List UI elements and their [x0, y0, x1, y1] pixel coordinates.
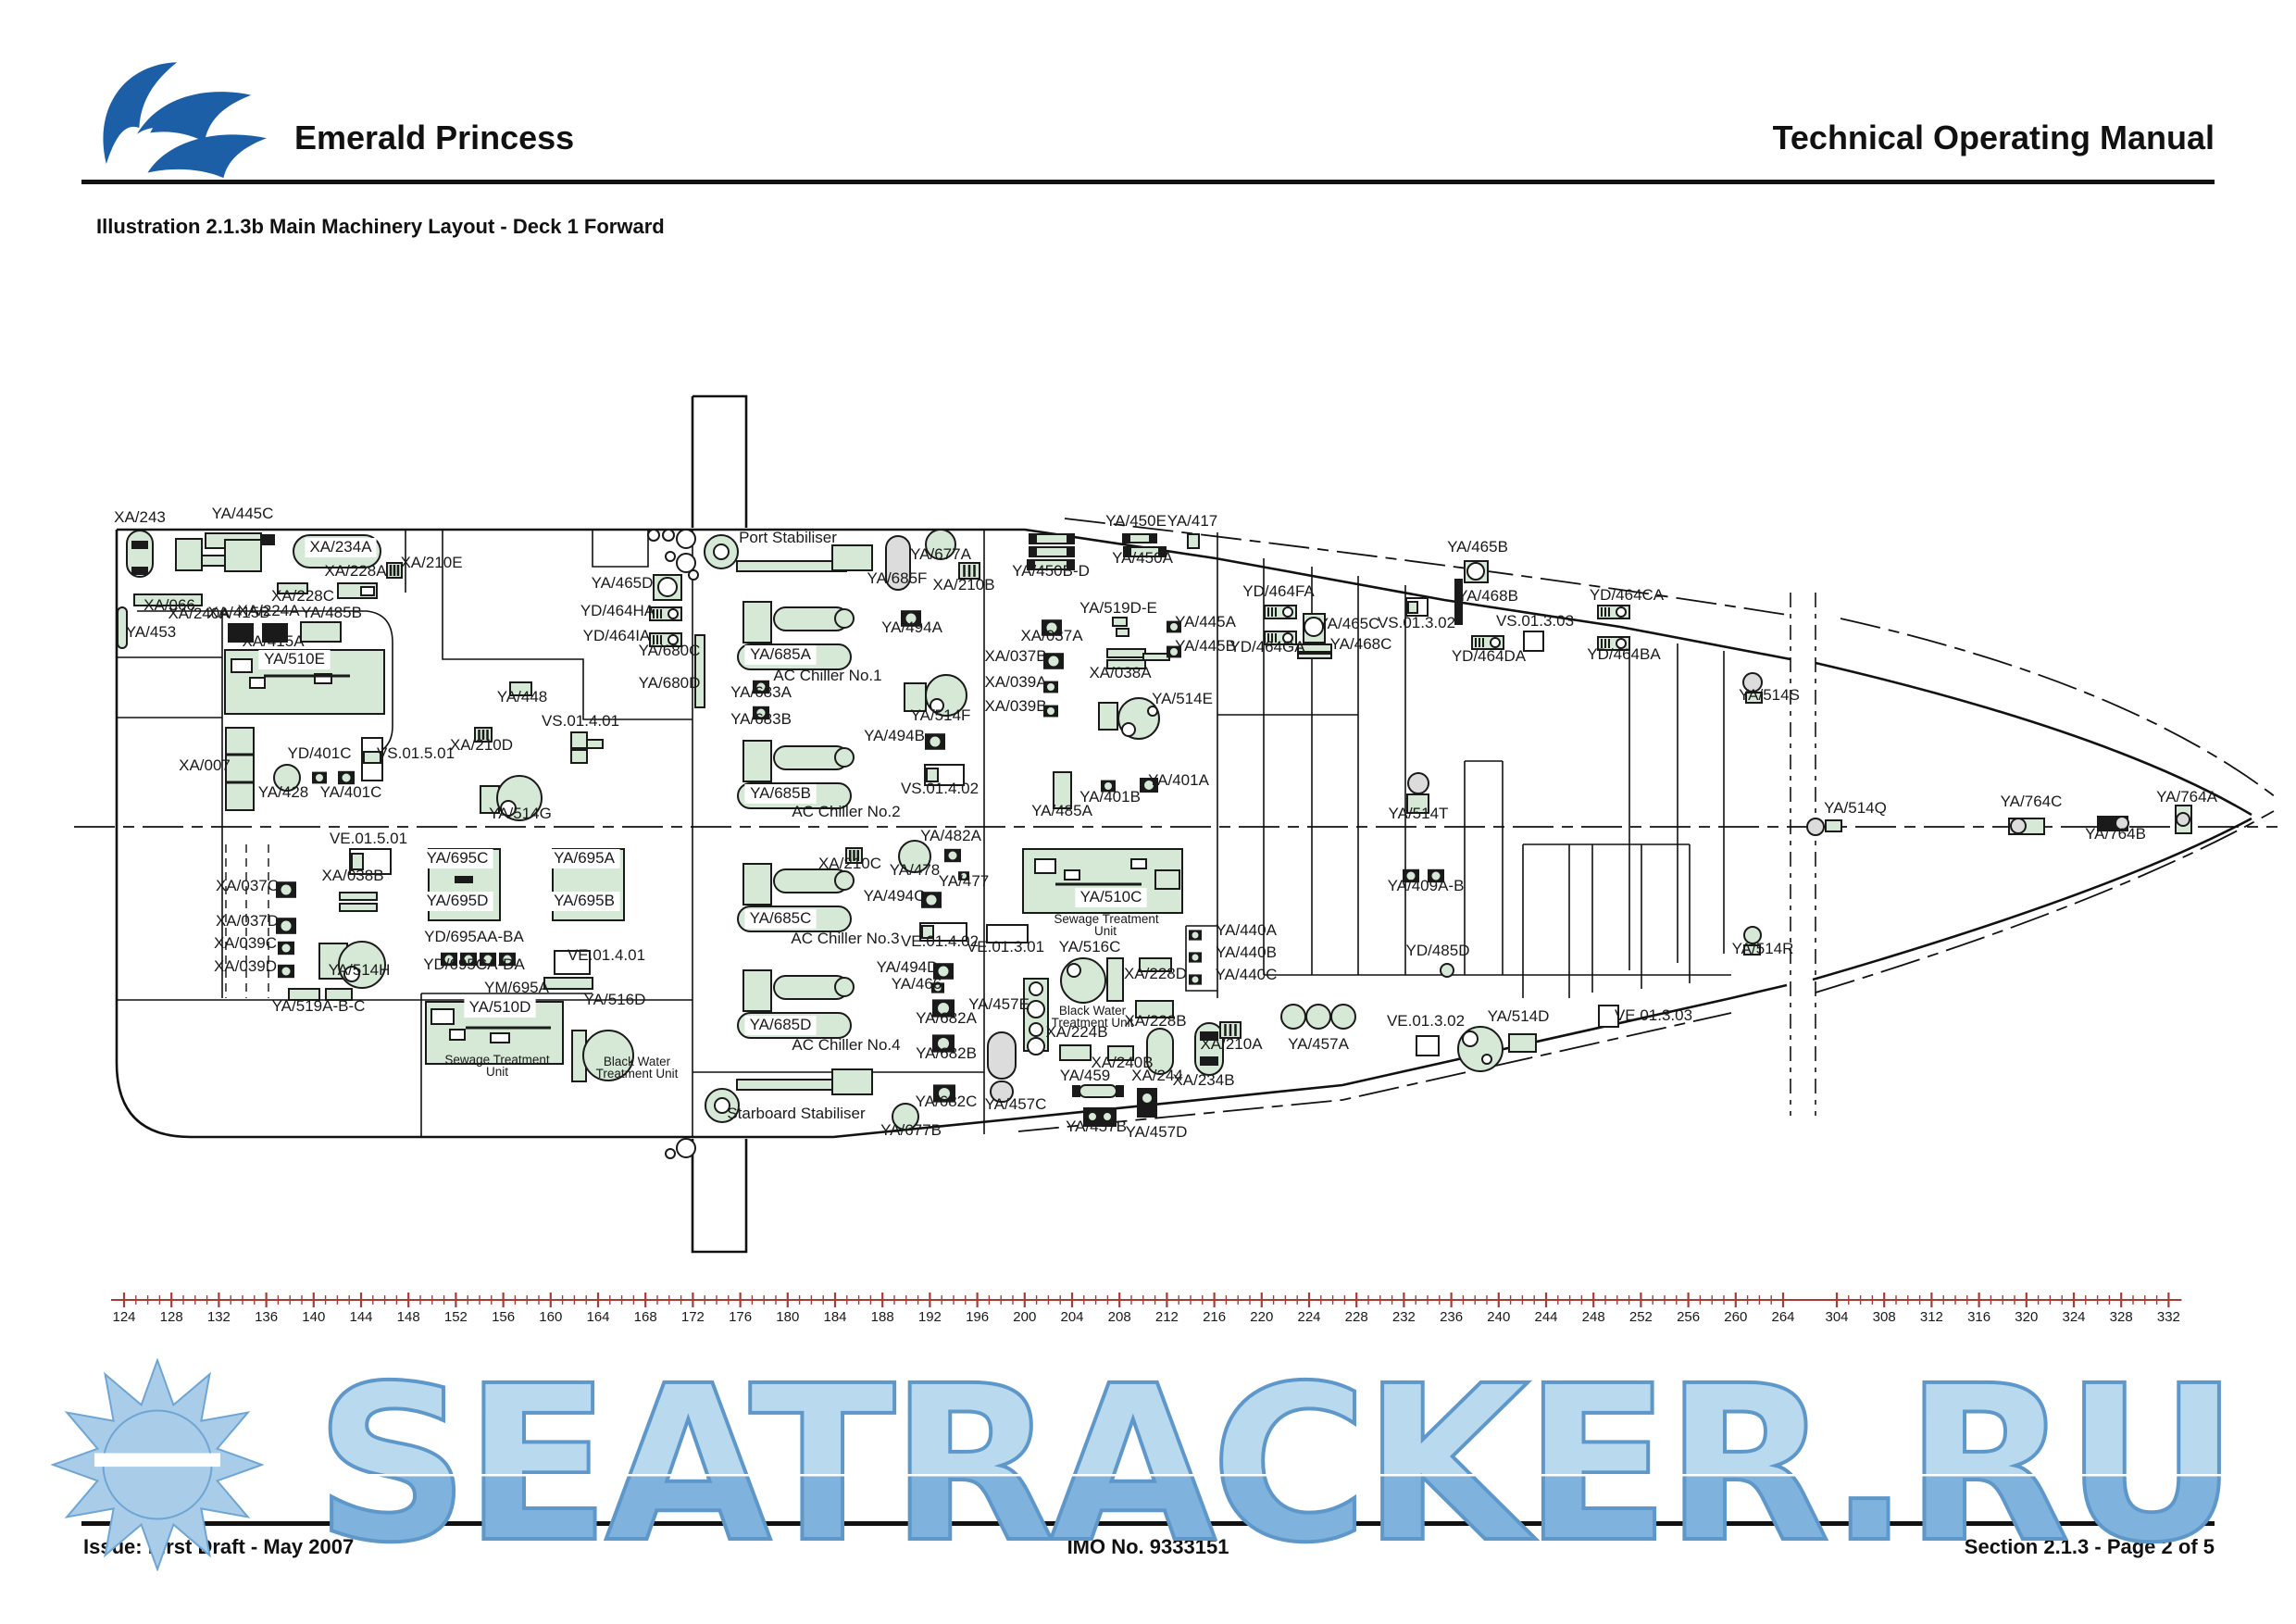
label-ya-478: YA/478: [890, 861, 941, 879]
equipment-part: [361, 587, 374, 595]
equipment-part: [1416, 1036, 1439, 1056]
label-ya-457d: YA/457D: [1126, 1123, 1188, 1141]
label-ya-514g: YA/514G: [489, 805, 552, 822]
equipment-part: [648, 530, 659, 541]
pump-icon: [1192, 955, 1199, 961]
label-ya-516d: YA/516D: [584, 991, 646, 1008]
pump-icon: [930, 737, 941, 747]
label-ya-680c: YA/680C: [639, 642, 701, 659]
label-ya-468c: YA/468C: [1330, 635, 1392, 653]
label-ya-466: YA/466: [892, 975, 942, 993]
label-ya-468b: YA/468B: [1457, 587, 1518, 605]
frame-number-232: 232: [1392, 1309, 1416, 1325]
frame-number-236: 236: [1440, 1309, 1463, 1325]
frame-number-196: 196: [966, 1309, 989, 1325]
equipment-part: [225, 540, 261, 571]
frame-number-320: 320: [2015, 1309, 2038, 1325]
break-lines: [1791, 593, 1816, 1116]
label-yd-485d: YD/485D: [1406, 942, 1470, 959]
frame-number-316: 316: [1967, 1309, 1990, 1325]
watermark-sun-icon: [51, 1358, 264, 1571]
frame-number-148: 148: [397, 1309, 420, 1325]
strip-unit: [1123, 534, 1130, 543]
equipment-part: [1117, 629, 1129, 636]
equipment-part: [231, 659, 252, 672]
label-ve-01-3-03: VE.01.3.03: [1615, 1006, 1692, 1024]
label-ya-494a: YA/494A: [881, 618, 943, 636]
label-ya-465d: YA/465D: [592, 574, 654, 592]
fan-unit-icon: [1616, 607, 1626, 617]
equipment-part: [743, 602, 771, 643]
label-xa-234b: XA/234B: [1172, 1071, 1234, 1089]
label-xa-037b: XA/037B: [984, 647, 1046, 665]
watermark-text: SEATRACKER.RU SEATRACKER.RU: [315, 1349, 2233, 1580]
label-xa-415b: XA/415B: [207, 604, 269, 621]
label-xa-228d: XA/228D: [1124, 965, 1187, 982]
label-ya-401b: YA/401B: [1079, 788, 1141, 806]
equipment-part: [1524, 631, 1543, 651]
pump-icon: [282, 944, 291, 953]
label-ya-685c: YA/685C: [750, 909, 812, 927]
equipment-part: [714, 544, 729, 559]
frame-number-180: 180: [776, 1309, 799, 1325]
pump-icon: [1192, 977, 1199, 983]
equipment-part: [250, 678, 265, 688]
frame-number-176: 176: [729, 1309, 752, 1325]
label-ya-682a: YA/682A: [916, 1009, 978, 1027]
frame-number-204: 204: [1060, 1309, 1083, 1325]
label-ya-494b: YA/494B: [864, 727, 925, 744]
label-ve-01-3-01: VE.01.3.01: [967, 938, 1044, 956]
frame-number-144: 144: [349, 1309, 372, 1325]
equipment-part: [1143, 654, 1169, 660]
equipment-part: [1408, 773, 1429, 793]
equipment-part: [988, 1032, 1016, 1079]
frame-number-136: 136: [255, 1309, 278, 1325]
label-ya-445b: YA/445B: [1175, 637, 1236, 655]
frame-number-192: 192: [918, 1309, 942, 1325]
fan-unit-icon: [1491, 638, 1500, 647]
label-ya-465b: YA/465B: [1447, 538, 1508, 556]
label-xa-037c: XA/037C: [216, 877, 279, 894]
label-starboard-stabiliser: Starboard Stabiliser: [727, 1105, 866, 1122]
label-ya-440c: YA/440C: [1216, 966, 1278, 983]
pump-icon: [316, 774, 323, 781]
label-ya-457a: YA/457A: [1288, 1035, 1350, 1053]
pump-icon: [949, 852, 957, 860]
pump-icon: [282, 968, 291, 976]
frame-number-224: 224: [1297, 1309, 1320, 1325]
frame-number-164: 164: [586, 1309, 609, 1325]
label-yd-464ca: YD/464CA: [1590, 586, 1665, 604]
equipment-part: [1029, 982, 1042, 995]
equipment-part: [835, 609, 854, 628]
pump-icon: [281, 885, 292, 895]
frame-number-308: 308: [1873, 1309, 1896, 1325]
equipment-part: [1122, 723, 1135, 736]
equipment-part: [587, 740, 603, 748]
equipment-part: [658, 578, 677, 596]
frame-number-140: 140: [302, 1309, 325, 1325]
label-ya-514h: YA/514H: [329, 961, 391, 979]
equipment-part: [663, 530, 674, 541]
label-ya-440b: YA/440B: [1216, 943, 1277, 961]
label-yd-695aa-ba: YD/695AA-BA: [424, 928, 524, 945]
frame-number-248: 248: [1582, 1309, 1605, 1325]
frame-number-312: 312: [1920, 1309, 1943, 1325]
label-treatment-unit: Treatment Unit: [1052, 1016, 1134, 1030]
label-ac-chiller-no-3: AC Chiller No.3: [791, 930, 899, 947]
strip-unit: [1029, 534, 1037, 543]
label-yd-401c: YD/401C: [288, 744, 352, 762]
equipment-part: [1065, 870, 1079, 880]
equipment-shapes: [118, 530, 2191, 1158]
equipment-part: [1509, 1034, 1536, 1052]
label-xa-038a: XA/038A: [1089, 664, 1152, 681]
label-ya-445a: YA/445A: [1175, 613, 1237, 631]
frame-number-168: 168: [634, 1309, 657, 1325]
equipment-part: [1408, 602, 1417, 613]
label-ya-764a: YA/764A: [2156, 788, 2218, 806]
label-xa-039d: XA/039D: [214, 957, 277, 975]
label-xa-228c: XA/228C: [271, 587, 334, 605]
label-ya-514e: YA/514E: [1152, 690, 1213, 707]
equipment-part: [677, 530, 695, 548]
label-ya-477: YA/477: [939, 872, 990, 890]
equipment-part: [1060, 1045, 1091, 1060]
equipment-part: [1107, 958, 1123, 1001]
equipment-part: [1826, 820, 1841, 831]
pump-icon: [1049, 656, 1059, 667]
frame-number-216: 216: [1203, 1309, 1226, 1325]
port-stabiliser-pocket: [693, 396, 746, 528]
frame-number-260: 260: [1724, 1309, 1747, 1325]
equipment-part: [689, 570, 698, 580]
label-ya-516c: YA/516C: [1059, 938, 1121, 956]
label-ya-417: YA/417: [1167, 512, 1218, 530]
hull-bow-bottom: [1813, 818, 2252, 980]
label-ya-519a-b-c: YA/519A-B-C: [272, 997, 366, 1015]
label-ya-683a: YA/683A: [730, 683, 792, 701]
label-yd-695ca-da: YD/695CA-DA: [423, 956, 525, 973]
label-xa-066: XA/066: [143, 596, 195, 614]
label-xa-210e: XA/210E: [400, 554, 462, 571]
label-ya-680d: YA/680D: [639, 674, 701, 692]
equipment-part: [1142, 1093, 1153, 1104]
equipment-part: [1281, 1005, 1305, 1029]
label-ya-764b: YA/764B: [2085, 825, 2146, 843]
equipment-part: [1079, 1085, 1117, 1097]
label-ya-685f: YA/685F: [867, 569, 928, 587]
label-xa-228a: XA/228A: [324, 562, 387, 580]
frame-number-152: 152: [444, 1309, 468, 1325]
equipment-part: [1331, 1005, 1355, 1029]
label-ya-514d: YA/514D: [1488, 1007, 1550, 1025]
frame-number-156: 156: [492, 1309, 515, 1325]
equipment-part: [835, 871, 854, 890]
equipment-part: [1155, 870, 1179, 889]
strip-unit: [1029, 547, 1037, 556]
equipment-part: [1029, 1023, 1042, 1036]
label-ym-695a: YM/695A: [484, 979, 550, 996]
label-ya-764c: YA/764C: [2001, 793, 2063, 810]
label-ya-683b: YA/683B: [730, 710, 792, 728]
frame-number-304: 304: [1825, 1309, 1848, 1325]
label-ya-401c: YA/401C: [320, 783, 382, 801]
equipment-part: [2011, 818, 2026, 833]
label-ya-685a: YA/685A: [750, 645, 812, 663]
fan-unit-icon: [1283, 607, 1292, 617]
equipment-part: [1028, 1038, 1044, 1055]
equipment-part: [835, 748, 854, 767]
label-ac-chiller-no-1: AC Chiller No.1: [773, 667, 881, 684]
label-ya-457c: YA/457C: [985, 1095, 1047, 1113]
frame-number-188: 188: [871, 1309, 894, 1325]
equipment-part: [1113, 618, 1127, 626]
frame-number-184: 184: [823, 1309, 846, 1325]
frame-number-228: 228: [1345, 1309, 1368, 1325]
label-xa-039b: XA/039B: [984, 697, 1046, 715]
equipment-part: [431, 1009, 454, 1024]
label-xa-234a: XA/234A: [309, 538, 372, 556]
equipment-part: [737, 1080, 846, 1090]
equipment-part: [1807, 818, 1824, 835]
label-ac-chiller-no-4: AC Chiller No.4: [792, 1036, 900, 1054]
equipment-part: [571, 732, 587, 748]
equipment-part: [1028, 1001, 1044, 1018]
label-ya-465c: YA/465C: [1318, 615, 1380, 632]
label-ve-01-3-02: VE.01.3.02: [1387, 1012, 1465, 1030]
label-ya-440a: YA/440A: [1216, 921, 1278, 939]
equipment-part: [544, 978, 593, 989]
equipment-part: [832, 545, 872, 570]
label-yd-464ha: YD/464HA: [580, 602, 655, 619]
label-ya-514s: YA/514S: [1739, 686, 1800, 704]
pump-icon: [1192, 932, 1199, 939]
label-xa-007: XA/007: [179, 756, 231, 774]
label-unit: Unit: [1094, 924, 1117, 938]
label-ve-01-5-01: VE.01.5.01: [330, 830, 407, 847]
label-xa-037d: XA/037D: [216, 912, 279, 930]
frame-number-256: 256: [1677, 1309, 1700, 1325]
strip-unit: [1067, 534, 1074, 543]
manual-page: Emerald Princess Technical Operating Man…: [0, 0, 2296, 1624]
label-ya-695c: YA/695C: [427, 849, 489, 867]
pump-icon: [281, 921, 292, 931]
equipment-part: [1067, 964, 1080, 977]
label-vs-01-3-03: VS.01.3.03: [1496, 612, 1574, 630]
label-xa-039c: XA/039C: [214, 934, 277, 952]
label-ya-510d: YA/510D: [469, 998, 531, 1016]
equipment-part: [1467, 563, 1484, 580]
frame-number-220: 220: [1250, 1309, 1273, 1325]
equipment-part: [132, 542, 147, 548]
label-xa-210a: XA/210A: [1200, 1035, 1263, 1053]
label-ya-485b: YA/485B: [301, 604, 362, 621]
label-ya-450a: YA/450A: [1112, 549, 1174, 567]
equipment-part: [1117, 1086, 1123, 1096]
equipment-part: [340, 904, 377, 911]
equipment-part: [835, 978, 854, 996]
label-treatment-unit: Treatment Unit: [596, 1067, 679, 1081]
label-vs-01-4-02: VS.01.4.02: [901, 780, 979, 797]
label-ya-450b-d: YA/450B-D: [1012, 562, 1090, 580]
label-xa-210c: XA/210C: [818, 855, 881, 872]
equipment-part: [1061, 958, 1105, 1003]
label-yd-464ga: YD/464GA: [1229, 638, 1305, 656]
label-vs-01-5-01: VS.01.5.01: [377, 744, 455, 762]
label-ya-685b: YA/685B: [750, 784, 811, 802]
equipment-part: [1441, 964, 1454, 977]
equipment-part: [1482, 1055, 1491, 1064]
frame-scale: 1241281321361401441481521561601641681721…: [111, 1293, 2181, 1325]
label-ya-685d: YA/685D: [750, 1016, 812, 1033]
stbd-stabiliser-pocket: [693, 1139, 746, 1252]
equipment-part: [1131, 859, 1146, 868]
seatracker-watermark: SEATRACKER.RU SEATRACKER.RU: [51, 1335, 2291, 1594]
equipment-part: [743, 741, 771, 781]
equipment-part: [1107, 649, 1145, 657]
label-xa-243: XA/243: [114, 508, 166, 526]
strip-unit: [1067, 547, 1074, 556]
label-ya-409a-b: YA/409A-B: [1388, 877, 1465, 894]
equipment-part: [666, 1149, 675, 1158]
frame-number-132: 132: [207, 1309, 231, 1325]
frame-number-328: 328: [2110, 1309, 2133, 1325]
equipment-part: [1148, 706, 1157, 716]
equipment-part: [1463, 1031, 1478, 1046]
frame-number-124: 124: [112, 1309, 135, 1325]
label-ya-695d: YA/695D: [427, 892, 489, 909]
equipment-part: [743, 864, 771, 905]
deck-edge-top: [1065, 518, 2279, 800]
label-xa-415a: XA/415A: [242, 632, 305, 650]
equipment-part: [832, 1069, 872, 1094]
fan-unit-icon: [668, 609, 678, 618]
equipment-part: [743, 970, 771, 1011]
label-ya-514t: YA/514T: [1389, 805, 1449, 822]
equipment-part: [1099, 703, 1117, 730]
equipment-part: [176, 539, 202, 570]
frame-number-240: 240: [1487, 1309, 1510, 1325]
strip-unit: [1149, 534, 1156, 543]
pump-icon: [927, 895, 937, 906]
equipment-part: [571, 750, 587, 763]
label-yd-464ba: YD/464BA: [1587, 645, 1661, 663]
frame-number-252: 252: [1629, 1309, 1653, 1325]
frame-number-212: 212: [1155, 1309, 1179, 1325]
equipment-part: [202, 556, 225, 566]
label-ya-514f: YA/514F: [911, 706, 971, 724]
label-ya-401a: YA/401A: [1148, 771, 1210, 789]
label-ya-519d-e: YA/519D-E: [1079, 599, 1157, 617]
frame-number-244: 244: [1534, 1309, 1557, 1325]
label-ya-428: YA/428: [258, 783, 309, 801]
label-ya-695b: YA/695B: [554, 892, 615, 909]
label-ya-482a: YA/482A: [920, 827, 982, 844]
label-ya-457b: YA/457B: [1066, 1118, 1127, 1135]
equipment-part: [261, 535, 274, 544]
label-ya-510e: YA/510E: [264, 650, 325, 668]
label-xa-037a: XA/037A: [1020, 627, 1083, 644]
label-ya-448: YA/448: [497, 688, 548, 706]
equipment-part: [677, 1139, 695, 1157]
frame-number-332: 332: [2157, 1309, 2180, 1325]
label-ya-677a: YA/677A: [910, 545, 972, 563]
equipment-part: [455, 877, 472, 882]
equipment-part: [301, 622, 341, 642]
label-xa-038b: XA/038B: [321, 867, 383, 884]
pump-icon: [343, 774, 351, 782]
label-ya-695a: YA/695A: [554, 849, 616, 867]
label-xa-039a: XA/039A: [984, 673, 1047, 691]
label-xa-210d: XA/210D: [450, 736, 513, 754]
pump-icon: [1047, 707, 1054, 715]
equipment-part: [1035, 859, 1055, 873]
label-xa-228b: XA/228B: [1124, 1012, 1186, 1030]
label-yd-464da: YD/464DA: [1452, 647, 1527, 665]
label-ac-chiller-no-2: AC Chiller No.2: [792, 803, 900, 820]
frame-number-264: 264: [1771, 1309, 1794, 1325]
label-ve-01-4-01: VE.01.4.01: [568, 946, 645, 964]
frame-number-160: 160: [539, 1309, 562, 1325]
label-ya-494c: YA/494C: [864, 887, 926, 905]
label-ya-514q: YA/514Q: [1824, 799, 1887, 817]
label-ya-450e: YA/450E: [1105, 512, 1167, 530]
pump-icon: [1047, 683, 1054, 691]
equipment-part: [1306, 1005, 1330, 1029]
label-unit: Unit: [486, 1065, 508, 1079]
equipment-part: [2177, 813, 2190, 826]
equipment-part: [1188, 534, 1199, 548]
frame-number-324: 324: [2062, 1309, 2085, 1325]
label-ya-494d: YA/494D: [877, 958, 939, 976]
label-port-stabiliser: Port Stabiliser: [739, 529, 837, 546]
equipment-part: [677, 554, 695, 572]
frame-number-128: 128: [160, 1309, 183, 1325]
label-ya-682b: YA/682B: [916, 1044, 977, 1062]
label-ya-677b: YA/677B: [880, 1121, 942, 1139]
label-ya-514r: YA/514R: [1732, 940, 1794, 957]
label-xa-210b: XA/210B: [932, 576, 994, 593]
label-ya-682c: YA/682C: [916, 1093, 978, 1110]
label-yd-464fa: YD/464FA: [1242, 582, 1315, 600]
equipment-part: [737, 561, 846, 571]
label-vs-01-4-01: VS.01.4.01: [542, 712, 619, 730]
equipment-part: [340, 893, 377, 900]
equipment-part: [1073, 1086, 1079, 1096]
frame-number-172: 172: [681, 1309, 705, 1325]
equipment-part: [450, 1030, 465, 1040]
equipment-part: [1201, 1057, 1217, 1065]
label-ya-453: YA/453: [126, 623, 177, 641]
equipment-part: [491, 1033, 509, 1043]
frame-number-208: 208: [1108, 1309, 1131, 1325]
label-vs-01-3-02: VS.01.3.02: [1378, 614, 1455, 631]
frame-number-200: 200: [1013, 1309, 1036, 1325]
equipment-part: [132, 568, 147, 574]
label-ya-510c: YA/510C: [1080, 888, 1142, 906]
equipment-part: [666, 552, 675, 561]
label-ya-445c: YA/445C: [212, 505, 274, 522]
label-ya-457e: YA/457E: [968, 995, 1029, 1013]
